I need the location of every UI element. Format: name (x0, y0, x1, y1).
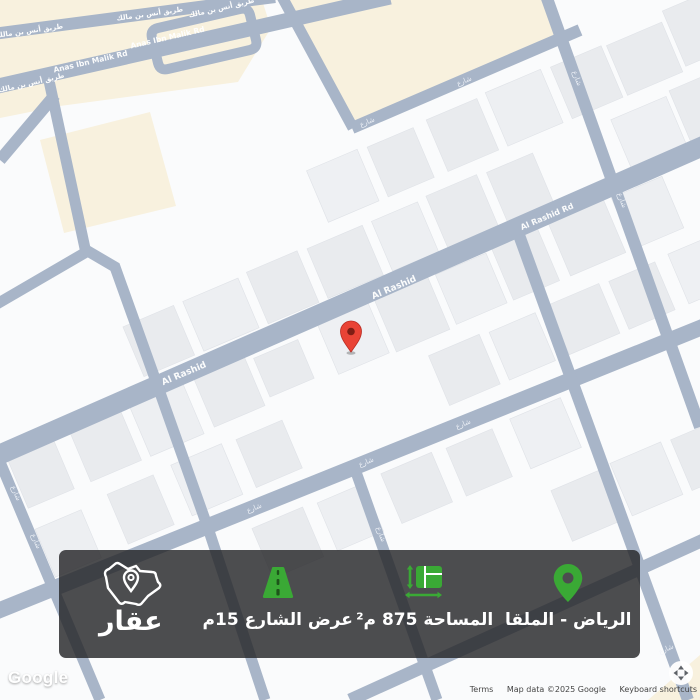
saudi-map-logo-icon (98, 562, 164, 604)
pan-control-bg (669, 661, 693, 685)
map-data-copyright: Map data ©2025 Google (507, 685, 606, 694)
area-section: المساحة 875 م² (353, 550, 497, 658)
street-width-section: عرض الشارع 15م (203, 550, 353, 658)
pan-control[interactable] (668, 660, 696, 688)
road-icon (258, 562, 298, 604)
area-measure-icon (403, 562, 447, 604)
location-label: الرياض - الملقا (505, 610, 631, 630)
area-label: المساحة 875 م² (356, 610, 493, 630)
google-logo[interactable]: Google (8, 668, 68, 688)
location-section: الرياض - الملقا (496, 550, 640, 658)
map-attribution: Terms Map data ©2025 Google Keyboard sho… (459, 685, 697, 694)
pin-hole (347, 328, 355, 336)
location-pin-icon (553, 562, 583, 604)
street-width-label: عرض الشارع 15م (203, 610, 353, 630)
map-screenshot: طريق أنس بن مالك طريق أنس بن مالك طريق أ… (0, 0, 700, 700)
property-info-bar: الرياض - الملقا (59, 550, 640, 658)
brand-section: عقار (59, 550, 203, 658)
keyboard-shortcuts-link[interactable]: Keyboard shortcuts (620, 685, 697, 694)
brand-logo-text: عقار (99, 606, 163, 637)
terms-link[interactable]: Terms (470, 685, 494, 694)
